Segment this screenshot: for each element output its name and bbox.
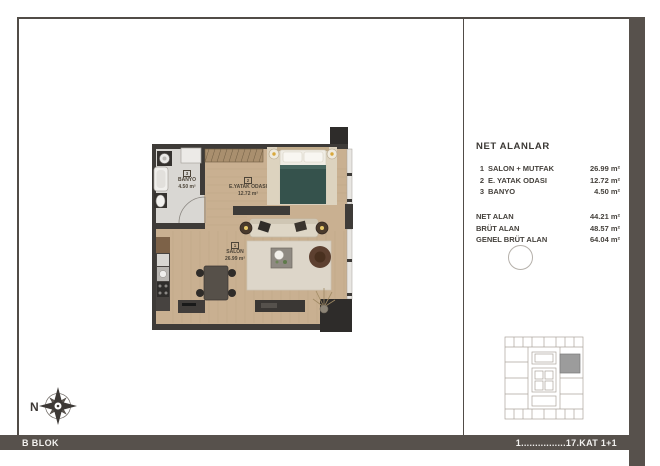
room-number: 2 <box>244 177 252 184</box>
key-plan-drawing <box>502 334 586 424</box>
room-row-area: 12.72 m² <box>590 176 620 185</box>
stamp-circle <box>508 245 533 270</box>
room-label-banyo: 3 BANYO 4.50 m² <box>167 170 207 190</box>
key-plan <box>502 334 586 429</box>
room-row: 1 SALON + MUTFAK 26.99 m² <box>476 164 620 176</box>
room-number: 1 <box>231 242 239 249</box>
net-areas-room-list: 1 SALON + MUTFAK 26.99 m² 2 E. YATAK ODA… <box>476 164 620 199</box>
room-row-name: BANYO <box>488 187 515 196</box>
block-name: B BLOK <box>0 438 59 448</box>
compass-rose-icon: N <box>28 384 90 430</box>
room-label-bedroom: 2 E.YATAK ODASI 12.72 m² <box>221 177 275 197</box>
net-areas-title: NET ALANLAR <box>476 141 550 152</box>
room-row-number: 3 <box>476 187 484 196</box>
total-row: GENEL BRÜT ALAN 64.04 m² <box>476 235 620 247</box>
compass-north-label: N <box>30 400 39 414</box>
frame-right-bar <box>629 17 645 466</box>
room-row: 2 E. YATAK ODASI 12.72 m² <box>476 176 620 188</box>
total-row: BRÜT ALAN 48.57 m² <box>476 224 620 236</box>
room-row-number: 1 <box>476 164 484 173</box>
room-row-area: 26.99 m² <box>590 164 620 173</box>
footer-bar: B BLOK 1................17.KAT 1+1 <box>0 435 645 450</box>
floor-plan-drawing <box>149 123 361 335</box>
room-area: 12.72 m² <box>238 191 258 197</box>
floor-range: 1................17.KAT 1+1 <box>516 438 645 448</box>
floor-plan: 3 BANYO 4.50 m² 2 E.YATAK ODASI 12.72 m²… <box>149 123 361 335</box>
total-row: NET ALAN 44.21 m² <box>476 212 620 224</box>
total-value: 44.21 m² <box>590 212 620 221</box>
total-label: NET ALAN <box>476 212 514 221</box>
frame-left-rule <box>17 17 19 435</box>
room-number: 3 <box>183 170 191 177</box>
total-label: GENEL BRÜT ALAN <box>476 235 547 244</box>
room-name: BANYO <box>178 177 196 183</box>
compass: N <box>28 384 90 435</box>
room-name: SALON <box>226 249 244 255</box>
room-area: 26.99 m² <box>225 256 245 262</box>
room-row-name: E. YATAK ODASI <box>488 176 547 185</box>
total-label: BRÜT ALAN <box>476 224 519 233</box>
room-label-salon: 1 SALON 26.99 m² <box>212 242 258 262</box>
room-row-area: 4.50 m² <box>594 187 620 196</box>
total-value: 64.04 m² <box>590 235 620 244</box>
panel-divider-rule <box>463 17 464 435</box>
room-name: E.YATAK ODASI <box>229 184 267 190</box>
room-row-number: 2 <box>476 176 484 185</box>
frame-top-rule <box>17 17 645 19</box>
room-area: 4.50 m² <box>178 184 195 190</box>
room-row: 3 BANYO 4.50 m² <box>476 187 620 199</box>
brochure-page: 3 BANYO 4.50 m² 2 E.YATAK ODASI 12.72 m²… <box>0 0 660 466</box>
room-row-name: SALON + MUTFAK <box>488 164 554 173</box>
highlighted-unit <box>560 354 580 373</box>
total-value: 48.57 m² <box>590 224 620 233</box>
area-totals-list: NET ALAN 44.21 m² BRÜT ALAN 48.57 m² GEN… <box>476 212 620 247</box>
